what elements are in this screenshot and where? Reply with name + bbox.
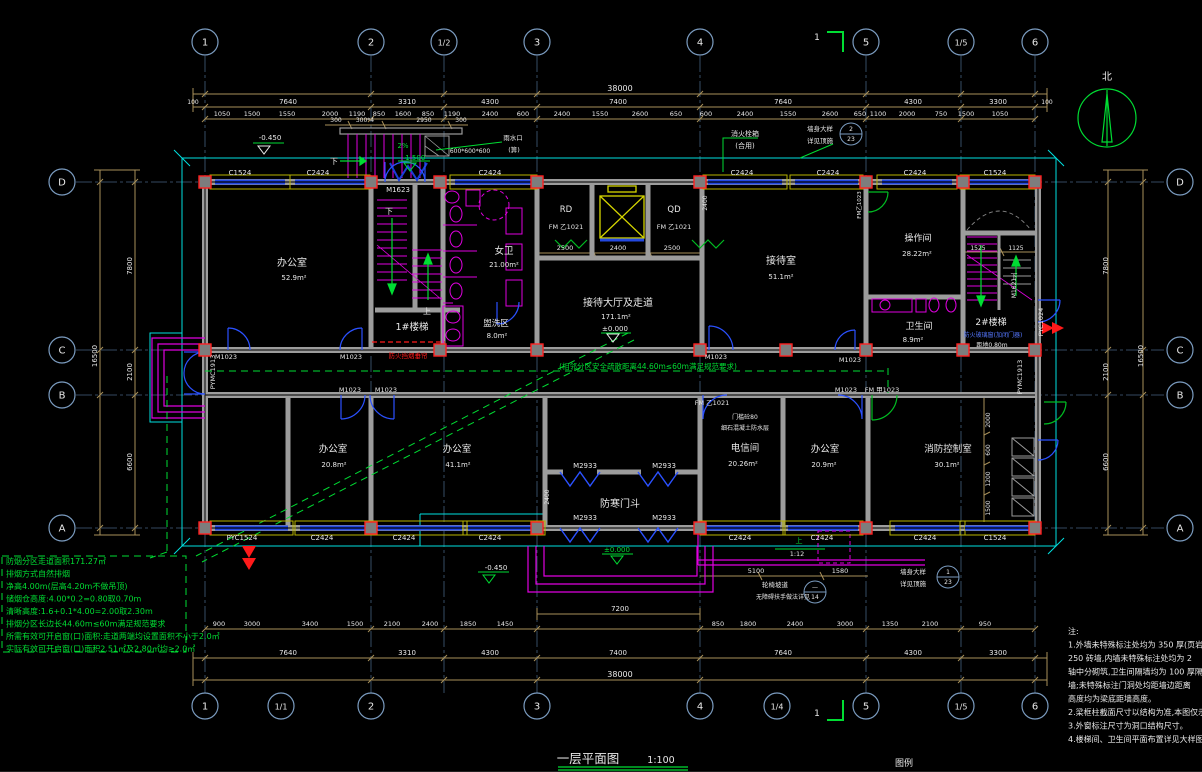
annotation: 接待室 <box>766 254 796 267</box>
general-notes: 注:1.外墙未特殊标注处均为 350 厚(页岩250 砖墙,内墙未特殊标注处均为… <box>1068 626 1202 744</box>
annotation: 盥洗区 <box>483 318 509 329</box>
annotation: 600 <box>517 110 529 118</box>
annotation: 1500 <box>244 110 261 118</box>
annotation: 1#楼梯 <box>395 321 429 333</box>
annotation: 消防控制室 <box>924 443 972 455</box>
annotation: 2400 <box>554 110 571 118</box>
annotation: 1550 <box>279 110 296 118</box>
column <box>199 176 211 188</box>
annotation: 23 <box>847 136 855 143</box>
axis-bubble-D: D <box>1167 169 1193 195</box>
window-label: C2424 <box>914 534 937 542</box>
annotation: 300 <box>330 117 342 124</box>
annotation: 3310 <box>398 98 416 106</box>
axis-bubble-label: 5 <box>863 38 869 49</box>
axis-bubble-label: 1/4 <box>771 703 784 712</box>
annotation: 办公室 <box>319 443 348 455</box>
axis-bubble-1/5: 1/5 <box>948 693 974 719</box>
annotation: M2933 <box>573 514 597 522</box>
annotation: 电信间 <box>731 442 760 454</box>
annotation: 3300 <box>989 649 1007 657</box>
axis-bubble-2: 2 <box>358 693 384 719</box>
title-block: 一层平面图 1:100 图例 <box>557 751 913 770</box>
annotation: M1023 <box>375 386 397 394</box>
axis-bubble-label: 1 <box>202 702 208 713</box>
axis-bubble-label: D <box>58 178 66 189</box>
drawing-scale: 1:100 <box>647 755 674 766</box>
column <box>694 522 706 534</box>
annotation: -0.450 <box>259 134 282 142</box>
axis-bubble-label: 6 <box>1032 702 1038 713</box>
annotation: 细石混凝土防水层 <box>721 424 769 432</box>
window-label: C2424 <box>479 534 502 542</box>
smoke-control-note: 防烟分区走道面积171.27㎡排烟方式自然排烟净高4.00m(层高4.20m不做… <box>6 556 220 654</box>
smoke-note-line: 排烟方式自然排烟 <box>6 569 70 579</box>
annotation: 下 <box>330 157 338 166</box>
annotation: -0.450 <box>485 564 508 572</box>
annotation: 门槛砼80 <box>732 413 758 421</box>
annotation: RD <box>560 205 573 215</box>
axis-bubble-label: 4 <box>697 702 703 713</box>
annotation: 1580 <box>832 567 849 575</box>
annotation: 650 <box>670 110 682 118</box>
annotation: 30.1m² <box>934 461 959 469</box>
annotation: 8.0m² <box>487 332 508 340</box>
annotation: 距地0.80m <box>976 341 1007 349</box>
smoke-note-line: 防烟分区走道面积171.27㎡ <box>6 556 106 566</box>
annotation: 办公室 <box>443 443 472 455</box>
annotation: 2100 <box>126 363 134 381</box>
annotation: PYC1024 <box>1037 308 1045 336</box>
annotation: 2400 <box>610 244 627 252</box>
stair-2-arc <box>967 211 1031 230</box>
annotation: 2400 <box>422 620 439 628</box>
axis-bubble-1/5: 1/5 <box>948 29 974 55</box>
annotation: 3310 <box>398 649 416 657</box>
annotation: FM 甲1023 <box>865 386 899 394</box>
axis-bubble-2: 2 <box>358 29 384 55</box>
annotation: 1350 <box>882 620 899 628</box>
annotation: 100 <box>1041 99 1053 106</box>
annotation: 1050 <box>992 110 1009 118</box>
annotation: 2950 <box>416 117 431 124</box>
column <box>1029 344 1041 356</box>
annotation: M2933 <box>652 514 676 522</box>
window-C1524: C1524 <box>960 521 1035 542</box>
annotation: 171.1m² <box>601 313 631 321</box>
annotation: 2400 <box>702 195 709 210</box>
annotation: 上 <box>796 536 803 545</box>
smoke-note-line: 清晰高度:1.6+0.1*4.00=2.00取2.30m <box>6 606 153 616</box>
column <box>434 344 446 356</box>
annotation: 21.00m² <box>489 261 519 269</box>
annotation: 4300 <box>481 98 499 106</box>
annotation: M2933 <box>573 462 597 470</box>
annotation: 2500 <box>557 244 574 252</box>
annotation: 7200 <box>611 605 629 613</box>
annotation: 4300 <box>904 649 922 657</box>
annotation: 2000 <box>985 412 992 427</box>
annotation: 4300 <box>904 98 922 106</box>
window-label: C1524 <box>984 534 1007 542</box>
axis-bubble-1/1: 1/1 <box>268 693 294 719</box>
drawing-title: 一层平面图 <box>557 751 620 766</box>
axis-bubble-D: D <box>49 169 75 195</box>
axis-bubble-C: C <box>1167 337 1193 363</box>
stair-1-arrows <box>388 218 432 300</box>
annotation: M2933 <box>652 462 676 470</box>
annotation: M1621 <box>1011 278 1018 299</box>
axis-bubble-label: 1/1 <box>275 703 288 712</box>
annotation: (合用) <box>735 141 755 150</box>
annotation: 雨水口 <box>503 133 523 142</box>
annotation: 16500 <box>1137 345 1145 367</box>
annotation: 16500 <box>91 345 99 367</box>
annotation: 23 <box>944 579 952 586</box>
annotation: 600 <box>700 110 712 118</box>
axis-bubble-label: B <box>59 391 66 402</box>
annotation: -1.500 <box>403 154 426 162</box>
annotation: 6600 <box>126 453 134 471</box>
axis-bubble-label: 1/5 <box>955 39 968 48</box>
annotation: 1525 <box>970 245 985 252</box>
annotation: 2000 <box>899 110 916 118</box>
dimension-chains <box>94 88 1148 686</box>
column <box>957 176 969 188</box>
annotation: 14 <box>811 594 819 601</box>
annotation: 墙身大样 <box>900 567 927 576</box>
elevator-shaft <box>600 186 644 240</box>
annotation: — <box>812 584 818 591</box>
window-label: C1524 <box>984 169 1007 177</box>
annotation: 墙身大样 <box>807 124 834 133</box>
annotation: 2400 <box>482 110 499 118</box>
axis-bubble-label: B <box>1177 391 1184 402</box>
annotation: 41.1m² <box>445 461 470 469</box>
window-PYC1524: PYC1524 <box>210 521 293 542</box>
annotation: 1600 <box>395 110 412 118</box>
note-line: 1.外墙未特殊标注处均为 350 厚(页岩 <box>1068 640 1202 650</box>
column <box>860 522 872 534</box>
annotation: 2400 <box>737 110 754 118</box>
axis-bubble-6: 6 <box>1022 29 1048 55</box>
column <box>860 344 872 356</box>
annotation: 7640 <box>279 649 297 657</box>
axis-bubble-A: A <box>49 515 75 541</box>
smoke-note-line: 所需有效可开启窗(口)面积:走道两端均设置面积不小于2.0㎡ <box>6 631 220 641</box>
annotation: PYMC1913 <box>1016 360 1024 394</box>
column <box>780 344 792 356</box>
annotation: 下 <box>385 207 393 216</box>
annotation: 300 <box>455 117 467 124</box>
note-line: 3.外窗标注尺寸为洞口结构尺寸。 <box>1068 721 1188 731</box>
annotation: 1 <box>946 569 950 576</box>
annotation: QD <box>667 205 681 215</box>
annotation: 52.9m² <box>281 274 306 282</box>
annotation: 51.1m² <box>768 273 793 281</box>
section-mark-top: 1 <box>814 33 820 43</box>
annotation: 详见顶施 <box>807 136 834 145</box>
annotation: 8.9m² <box>903 336 924 344</box>
annotation: 1125 <box>1008 245 1023 252</box>
annotation: M1023 <box>340 353 362 361</box>
annotation: 20.26m² <box>728 460 758 468</box>
axis-bubble-B: B <box>49 382 75 408</box>
annotation: 100 <box>187 99 199 106</box>
annotation: PYMC1913 <box>209 355 217 389</box>
window-C2424: C2424 <box>295 521 373 542</box>
annotation: 950 <box>979 620 991 628</box>
column <box>434 176 446 188</box>
column <box>531 176 543 188</box>
column <box>365 176 377 188</box>
axis-bubble-1: 1 <box>192 693 218 719</box>
north-label: 北 <box>1102 71 1112 83</box>
annotation: ±0.000 <box>604 546 630 554</box>
axis-bubble-5: 5 <box>853 29 879 55</box>
annotation: 7640 <box>279 98 297 106</box>
annotation: M1023 <box>835 386 857 394</box>
window-label: C2424 <box>479 169 502 177</box>
smoke-note-line: 排烟分区长边长44.60m≤60m满足规范要求 <box>6 619 165 629</box>
column <box>531 522 543 534</box>
annotation: M1023 <box>215 353 237 361</box>
window-label: C2424 <box>307 169 330 177</box>
annotation: 2400 <box>544 489 551 504</box>
window-label: C2424 <box>731 169 754 177</box>
annotation: 300*4 <box>356 117 374 124</box>
annotation: 1500 <box>958 110 975 118</box>
floor-plan-canvas: 北 1 1 一层平面图 1:100 图例 C1524C2424C2424C242… <box>0 0 1202 771</box>
note-line: 250 砖墙,内墙未特殊标注处均为 2 <box>1068 653 1192 663</box>
axis-bubble-label: D <box>1176 178 1184 189</box>
section-marks: 1 1 <box>814 32 843 720</box>
annotation: 1:12 <box>790 550 805 558</box>
column <box>199 522 211 534</box>
axis-bubble-label: C <box>1177 346 1184 357</box>
annotation: ±0.000 <box>602 325 628 333</box>
column <box>365 522 377 534</box>
axis-bubble-4: 4 <box>687 29 713 55</box>
axis-bubble-label: 3 <box>534 38 540 49</box>
annotation: 消火栓箱 <box>731 129 759 138</box>
window-label: C2424 <box>811 534 834 542</box>
annotation: 1800 <box>740 620 757 628</box>
smoke-note-line: 实际有效可开启窗(口)面积2.51㎡及2.80㎡均≥2.0㎡ <box>6 644 195 654</box>
annotation: 900 <box>213 620 225 628</box>
window-label: C2424 <box>311 534 334 542</box>
axis-bubble-3: 3 <box>524 693 550 719</box>
annotation: 2600 <box>632 110 649 118</box>
axis-bubble-6: 6 <box>1022 693 1048 719</box>
annotation: 无障碍扶手做法详见 <box>756 593 810 601</box>
annotation: 3400 <box>302 620 319 628</box>
annotation: 卫生间 <box>905 320 932 332</box>
axis-bubble-C: C <box>49 337 75 363</box>
annotation: 2#楼梯 <box>975 316 1006 328</box>
axis-bubble-label: 1/5 <box>955 703 968 712</box>
annotation: 1500 <box>347 620 364 628</box>
annotation: 7400 <box>609 98 627 106</box>
annotation: 2100 <box>922 620 939 628</box>
annotation: 2100 <box>1102 363 1110 381</box>
annotation: FM 乙1021 <box>695 399 729 407</box>
column <box>531 344 543 356</box>
annotation: 1100 <box>870 110 887 118</box>
annotation: 7640 <box>774 98 792 106</box>
annotation: 600 <box>985 444 992 456</box>
note-line: 注: <box>1068 626 1079 636</box>
annotation: 38000 <box>607 670 632 679</box>
annotation: 3000 <box>244 620 261 628</box>
axis-bubble-4: 4 <box>687 693 713 719</box>
column <box>199 344 211 356</box>
annotation: FM 乙1021 <box>549 223 583 231</box>
annotation: 2600 <box>822 110 839 118</box>
annotation: 2 <box>849 126 853 133</box>
annotation: 防火玻璃窗(加闭门器) <box>964 331 1023 339</box>
axis-bubble-B: B <box>1167 382 1193 408</box>
annotation: 办公室 <box>277 256 307 269</box>
annotation: 接待大厅及走道 <box>583 296 653 309</box>
annotation: 28.22m² <box>902 250 932 258</box>
window-label: C2424 <box>904 169 927 177</box>
axis-bubble-label: C <box>59 346 66 357</box>
axis-bubble-label: A <box>1177 524 1184 535</box>
smoke-note-line: 净高4.00m(层高4.20m不做吊顶) <box>6 581 127 591</box>
annotation: 3000 <box>837 620 854 628</box>
axis-bubble-3: 3 <box>524 29 550 55</box>
annotation: 38000 <box>607 84 632 93</box>
column <box>1029 176 1041 188</box>
axis-bubble-label: 2 <box>368 702 374 713</box>
annotation: 750 <box>935 110 947 118</box>
axis-bubble-label: 4 <box>697 38 703 49</box>
note-line: 2.梁框柱截面尺寸以结构为准,本图仅示意。 <box>1068 707 1202 717</box>
note-line: 墙;未特殊标注门洞处均距墙边距离 <box>1068 680 1191 690</box>
note-line: 高度均为梁底距墙高度。 <box>1068 694 1156 704</box>
axis-bubble-label: 5 <box>863 702 869 713</box>
axis-bubble-1/2: 1/2 <box>431 29 457 55</box>
annotation: 5100 <box>748 567 765 575</box>
annotation: 办公室 <box>811 443 840 455</box>
axis-bubble-label: 6 <box>1032 38 1038 49</box>
annotation: 上 <box>423 307 431 316</box>
annotation: 防火挡烟垂帘 <box>389 351 429 360</box>
smoke-note-line: 储烟仓高度:4.00*0.2=0.80取0.70m <box>6 594 142 604</box>
annotation: 详见顶施 <box>900 579 927 588</box>
annotation: 6600 <box>1102 453 1110 471</box>
axis-bubble-label: 1/2 <box>438 39 451 48</box>
section-mark-bottom: 1 <box>814 709 820 719</box>
annotation: 2% <box>397 142 408 150</box>
axis-bubble-label: A <box>59 524 66 535</box>
annotation: 2400 <box>787 620 804 628</box>
column <box>1029 522 1041 534</box>
cad-floor-plan-viewport: 北 1 1 一层平面图 1:100 图例 C1524C2424C2424C242… <box>0 0 1202 772</box>
annotation: M1023 <box>839 356 861 364</box>
annotation: 600*600*600 <box>450 148 491 155</box>
window-label: C2424 <box>729 534 752 542</box>
annotation: 7800 <box>1102 257 1110 275</box>
axis-bubble-label: 1 <box>202 38 208 49</box>
annotation: FM乙1023 <box>856 191 863 219</box>
window-label: C2424 <box>393 534 416 542</box>
cabinets <box>1012 438 1034 516</box>
annotation: 女卫 <box>494 245 514 257</box>
window-label: C1524 <box>229 169 252 177</box>
annotation: 1550 <box>780 110 797 118</box>
columns <box>199 176 1041 534</box>
axis-bubble-A: A <box>1167 515 1193 541</box>
annotation: (相邻分区安全疏散距离44.60m≤60m满足规范要求) <box>559 361 737 371</box>
annotation: 7640 <box>774 649 792 657</box>
annotation: 7800 <box>126 257 134 275</box>
windows: C1524C2424C2424C2424C2424C2424C1524PYC15… <box>210 169 1035 542</box>
column <box>694 176 706 188</box>
annotation: 1450 <box>497 620 514 628</box>
annotation: 2100 <box>384 620 401 628</box>
legend-label: 图例 <box>895 757 913 769</box>
annotation: 850 <box>373 110 385 118</box>
annotation: FM 乙1021 <box>657 223 691 231</box>
annotation: 防寒门斗 <box>600 497 640 510</box>
annotation: 1050 <box>214 110 231 118</box>
annotation: 20.8m² <box>321 461 346 469</box>
window-label: C2424 <box>817 169 840 177</box>
annotation: 1850 <box>460 620 477 628</box>
north-arrow <box>1078 89 1136 147</box>
annotation: 7400 <box>609 649 627 657</box>
annotation: M1023 <box>705 353 727 361</box>
walls <box>200 179 1040 531</box>
axis-bubble-1/4: 1/4 <box>764 693 790 719</box>
column <box>957 344 969 356</box>
annotation: 4300 <box>481 649 499 657</box>
window-C2424: C2424 <box>890 521 965 542</box>
window-label: PYC1524 <box>227 534 258 542</box>
axis-bubble-1: 1 <box>192 29 218 55</box>
annotation: 850 <box>712 620 724 628</box>
window-C2424: C2424 <box>700 521 785 542</box>
annotation: 1500 <box>985 500 992 515</box>
annotation: M1023 <box>339 386 361 394</box>
axis-bubble-5: 5 <box>853 693 879 719</box>
column <box>860 176 872 188</box>
annotation: 操作间 <box>904 232 931 244</box>
note-line: 4.楼梯间、卫生间平面布置详见大样图。 <box>1068 734 1202 744</box>
annotation: M1623 <box>386 186 410 194</box>
note-line: 轴中分砌筑,卫生间隔墙均为 100 厚隔 <box>1068 667 1202 677</box>
annotation: 2500 <box>664 244 681 252</box>
axis-bubble-label: 3 <box>534 702 540 713</box>
grid-axis-lines <box>76 56 1164 693</box>
annotation: 1200 <box>985 471 992 486</box>
annotation: 1550 <box>592 110 609 118</box>
annotation: 650 <box>854 110 866 118</box>
annotation: 20.9m² <box>811 461 836 469</box>
axis-bubble-label: 2 <box>368 38 374 49</box>
annotation: (箅) <box>508 145 520 154</box>
annotation: 3300 <box>989 98 1007 106</box>
annotation: 轮椅坡道 <box>762 580 789 589</box>
